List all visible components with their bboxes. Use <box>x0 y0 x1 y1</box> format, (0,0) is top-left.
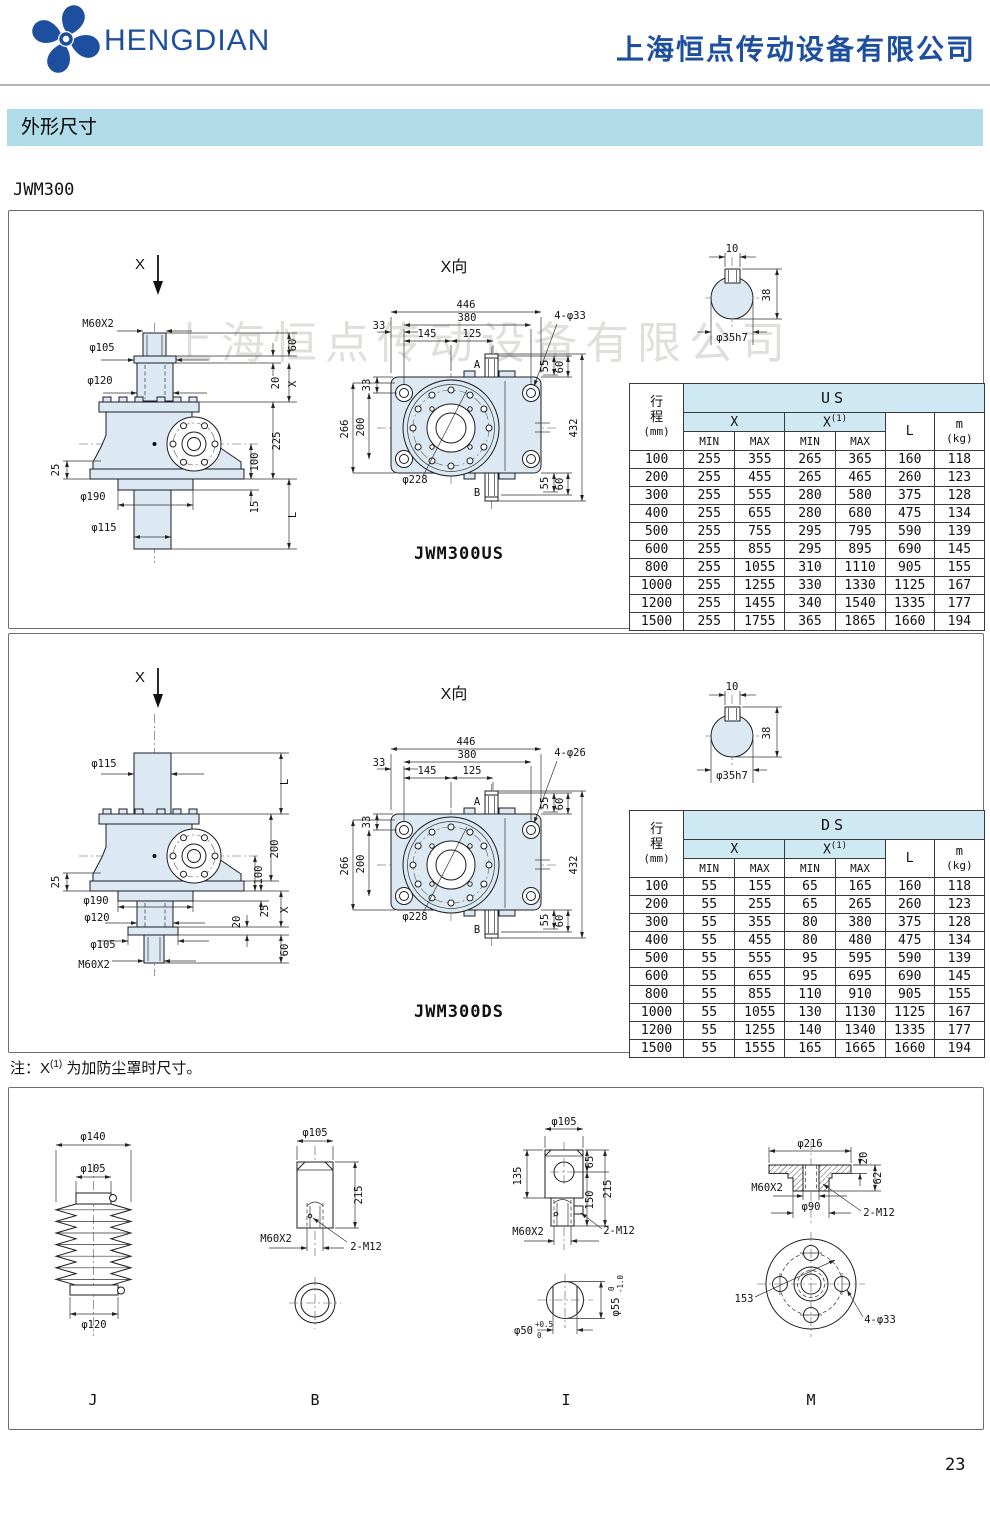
table-cell: 255 <box>684 451 735 469</box>
cap-bottom-view <box>289 1277 341 1329</box>
top-plate-drawing-b: φ105 215 M60X2 2-M12 <box>249 1110 429 1370</box>
table-cell: 265 <box>785 451 835 469</box>
table-cell: 255 <box>684 505 735 523</box>
table-cell: 1335 <box>885 1022 934 1040</box>
table-cell: 139 <box>934 950 984 968</box>
flange-bottom-view <box>757 1232 865 1337</box>
table-cell: 500 <box>630 523 684 541</box>
table-row: 3005535580380375128 <box>630 914 985 932</box>
table-cell: 300 <box>630 914 684 932</box>
table-cell: 1130 <box>835 1004 885 1022</box>
dim-label: 60 <box>279 944 291 957</box>
table-cell: 295 <box>785 541 835 559</box>
dim-label: φ120 <box>87 375 112 387</box>
dim-label: L <box>287 512 299 518</box>
min-header: MIN <box>785 859 835 878</box>
bellows-drawing-j: φ140 φ105 φ120 <box>39 1114 219 1394</box>
dim-label: 33 <box>361 379 373 392</box>
dim-label: φ105 <box>80 1163 105 1175</box>
dim-label: φ115 <box>91 758 116 770</box>
table-cell: 95 <box>785 968 835 986</box>
shaft-section <box>711 707 753 757</box>
table-cell: 600 <box>630 968 684 986</box>
dim-label: 55 <box>539 477 551 490</box>
table-cell: 177 <box>934 1022 984 1040</box>
dim-label: φ105 <box>302 1127 327 1139</box>
dim-label: 15 <box>249 501 261 514</box>
table-cell: 355 <box>735 451 785 469</box>
dim-label: 125 <box>463 328 482 340</box>
table-cell: 80 <box>785 914 835 932</box>
table-cell: 177 <box>934 595 984 613</box>
table-row: 300255555280580375128 <box>630 487 985 505</box>
table-cell: 128 <box>934 487 984 505</box>
table-cell: 1660 <box>885 1040 934 1058</box>
series-header: DS <box>684 811 985 840</box>
dim-label: 145 <box>418 765 437 777</box>
accessory-label-i: I <box>536 1391 596 1409</box>
dim-label: 153 <box>735 1293 754 1305</box>
dim-label: 145 <box>418 328 437 340</box>
dim-label: φ50 <box>514 1325 533 1337</box>
page-number: 23 <box>945 1455 965 1475</box>
dim-label: 432 <box>568 856 580 875</box>
dim-label: φ120 <box>84 912 109 924</box>
table-cell: 895 <box>835 541 885 559</box>
x1-header: X(1) <box>785 840 885 859</box>
table-cell: 140 <box>785 1022 835 1040</box>
table-cell: 165 <box>835 878 885 896</box>
table-row: 400255655280680475134 <box>630 505 985 523</box>
worm-shaft-section-drawing: 10 38 φ35h7 <box>669 241 819 371</box>
table-cell: 910 <box>835 986 885 1004</box>
table-cell: 1755 <box>735 613 785 631</box>
table-cell: 255 <box>735 896 785 914</box>
table-row: 6005565595695690145 <box>630 968 985 986</box>
jwm300ds-front-view-drawing: 446 380 145 125 33 33 266 200 <box>339 736 604 951</box>
table-cell: 555 <box>735 487 785 505</box>
dim-label: 4-φ33 <box>554 310 586 322</box>
table-cell: 690 <box>885 968 934 986</box>
accessory-label-m: M <box>781 1391 841 1409</box>
table-cell: 295 <box>785 523 835 541</box>
dim-label: 60 <box>554 915 566 928</box>
table-cell: 55 <box>684 968 735 986</box>
dim-label: φ105 <box>89 342 114 354</box>
table-cell: 80 <box>785 932 835 950</box>
table-cell: 55 <box>684 986 735 1004</box>
table-row: 4005545580480475134 <box>630 932 985 950</box>
dim-label: 4-φ33 <box>864 1314 896 1326</box>
table-cell: 455 <box>735 932 785 950</box>
dim-label: 10 <box>726 681 739 693</box>
table-cell: 465 <box>835 469 885 487</box>
dim-label: 266 <box>339 420 351 439</box>
table-cell: 280 <box>785 505 835 523</box>
dim-label: φ228 <box>402 911 427 923</box>
table-cell: 500 <box>630 950 684 968</box>
dim-label: 125 <box>463 765 482 777</box>
max-header: MAX <box>835 432 885 451</box>
dim-label: 266 <box>339 857 351 876</box>
dim-label: 20 <box>231 916 243 929</box>
dim-label: 150 <box>584 1191 596 1210</box>
jwm300ds-side-view-drawing: X <box>19 654 319 984</box>
table-cell: 145 <box>934 968 984 986</box>
min-header: MIN <box>684 859 735 878</box>
table-cell: 255 <box>684 487 735 505</box>
dim-label: L <box>279 779 291 785</box>
table-cell: 118 <box>934 878 984 896</box>
stroke-header: 行程(mm) <box>630 384 684 451</box>
table-cell: 365 <box>835 451 885 469</box>
table-cell: 480 <box>835 932 885 950</box>
table-cell: 595 <box>835 950 885 968</box>
x1-header: X(1) <box>785 413 885 432</box>
accessory-label-j: J <box>63 1391 123 1409</box>
dim-tolerance: +0.5 <box>535 1320 553 1329</box>
table-row: 600255855295895690145 <box>630 541 985 559</box>
dim-label: M60X2 <box>751 1182 783 1194</box>
table-row: 200255455265465260123 <box>630 469 985 487</box>
table-row: 1000255125533013301125167 <box>630 577 985 595</box>
table-cell: 590 <box>885 523 934 541</box>
max-header: MAX <box>835 859 885 878</box>
x-header: X <box>684 413 785 432</box>
table-cell: 255 <box>684 541 735 559</box>
flange-plate-drawing-m: φ216 20 62 M60X2 φ90 2-M12 <box>709 1113 939 1348</box>
table-cell: 55 <box>684 1004 735 1022</box>
table-cell: 475 <box>885 932 934 950</box>
table-cell: 905 <box>885 986 934 1004</box>
table-cell: 260 <box>885 896 934 914</box>
view-title: X向 <box>414 253 494 277</box>
table-cell: 95 <box>785 950 835 968</box>
view-direction-arrow: X <box>135 668 163 708</box>
dim-label: φ90 <box>802 1201 821 1213</box>
dim-label: φ35h7 <box>716 770 748 782</box>
table-cell: 167 <box>934 577 984 595</box>
dim-label: φ190 <box>80 491 105 503</box>
table-cell: 55 <box>684 1022 735 1040</box>
dim-label: φ228 <box>402 474 427 486</box>
dim-label: 2-M12 <box>603 1225 635 1237</box>
table-cell: 755 <box>735 523 785 541</box>
table-row: 1200255145534015401335177 <box>630 595 985 613</box>
table-cell: 600 <box>630 541 684 559</box>
jwm300us-front-view-drawing: 446 380 145 125 33 33 266 200 <box>339 299 604 514</box>
table-cell: 555 <box>735 950 785 968</box>
table-cell: 1865 <box>835 613 885 631</box>
dim-label: 25 <box>259 905 271 918</box>
dim-label: B <box>474 924 480 936</box>
dim-label: 2-M12 <box>863 1207 895 1219</box>
table-cell: 55 <box>684 932 735 950</box>
dim-label: 25 <box>50 876 62 889</box>
dim-label: φ140 <box>80 1131 105 1143</box>
table-cell: 55 <box>684 914 735 932</box>
dim-label: 60 <box>554 798 566 811</box>
dim-label: 135 <box>512 1167 524 1186</box>
ds-dimension-table: 行程(mm) DS X X(1) L m(kg) MIN MAX MIN MAX… <box>629 810 985 1058</box>
dim-label: 380 <box>458 749 477 761</box>
table-cell: 255 <box>684 559 735 577</box>
section-title-bar: 外形尺寸 <box>7 109 983 146</box>
drawing-caption: JWM300DS <box>394 1002 524 1022</box>
table-cell: 65 <box>785 896 835 914</box>
table-cell: 340 <box>785 595 835 613</box>
min-header: MIN <box>785 432 835 451</box>
table-cell: 100 <box>630 878 684 896</box>
max-header: MAX <box>735 859 785 878</box>
dim-label: φ105 <box>551 1116 576 1128</box>
table-cell: 310 <box>785 559 835 577</box>
table-cell: 400 <box>630 932 684 950</box>
min-header: MIN <box>684 432 735 451</box>
dim-label: φ35h7 <box>716 332 748 344</box>
table-cell: 65 <box>785 878 835 896</box>
table-cell: 55 <box>684 896 735 914</box>
dim-label: 25 <box>50 464 62 477</box>
dim-label: 4-φ26 <box>554 747 586 759</box>
table-cell: 455 <box>735 469 785 487</box>
table-cell: 123 <box>934 469 984 487</box>
dim-label: A <box>474 796 481 808</box>
dim-label: φ120 <box>81 1319 106 1331</box>
table-cell: 375 <box>885 914 934 932</box>
dim-label: 55 <box>539 797 551 810</box>
table-row: 1500255175536518651660194 <box>630 613 985 631</box>
dim-label: 38 <box>761 289 773 302</box>
table-row: 2005525565265260123 <box>630 896 985 914</box>
table-cell: 165 <box>785 1040 835 1058</box>
table-cell: 118 <box>934 451 984 469</box>
table-cell: 695 <box>835 968 885 986</box>
table-row: 100055105513011301125167 <box>630 1004 985 1022</box>
table-cell: 1540 <box>835 595 885 613</box>
end-fitting-drawings-panel: φ140 φ105 φ120 <box>8 1087 984 1430</box>
table-cell: 1255 <box>735 1022 785 1040</box>
dim-label: 225 <box>271 432 283 451</box>
dim-label: 55 <box>539 914 551 927</box>
dim-label: φ115 <box>91 522 116 534</box>
dim-tolerance: 0 <box>537 1331 542 1340</box>
table-cell: 680 <box>835 505 885 523</box>
table-cell: 1555 <box>735 1040 785 1058</box>
us-dimension-table: 行程(mm) US X X(1) L m(kg) MIN MAX MIN MAX… <box>629 383 985 631</box>
table-cell: 1000 <box>630 577 684 595</box>
table-cell: 855 <box>735 541 785 559</box>
max-header: MAX <box>735 432 785 451</box>
dim-label: 20 <box>858 1152 870 1165</box>
table-cell: 260 <box>885 469 934 487</box>
dim-label: M60X2 <box>78 959 110 971</box>
table-cell: 255 <box>684 595 735 613</box>
dim-label: A <box>474 359 481 371</box>
dim-label: M60X2 <box>260 1233 292 1245</box>
dim-label: 2-M12 <box>350 1241 382 1253</box>
mass-header: m(kg) <box>934 840 984 878</box>
table-row: 5005555595595590139 <box>630 950 985 968</box>
table-cell: 655 <box>735 505 785 523</box>
table-cell: 130 <box>785 1004 835 1022</box>
table-cell: 134 <box>934 932 984 950</box>
dim-label: 33 <box>373 320 386 332</box>
table-cell: 100 <box>630 451 684 469</box>
view-title: X向 <box>414 680 494 704</box>
accessory-label-b: B <box>285 1391 345 1409</box>
table-cell: 1125 <box>885 1004 934 1022</box>
table-cell: 795 <box>835 523 885 541</box>
table-body: 1005515565165160118200552556526526012330… <box>630 878 985 1058</box>
dim-tolerance: -1.0 <box>616 1274 625 1293</box>
table-cell: 1200 <box>630 595 684 613</box>
table-cell: 590 <box>885 950 934 968</box>
jwm300us-side-view-drawing: X <box>19 231 319 576</box>
table-row: 1005515565165160118 <box>630 878 985 896</box>
dim-label: 60 <box>287 339 299 352</box>
table-cell: 55 <box>684 878 735 896</box>
dim-label: 55 <box>539 360 551 373</box>
dim-label: 60 <box>554 361 566 374</box>
dim-label: X <box>135 669 145 686</box>
table-cell: 1500 <box>630 613 684 631</box>
x-header: X <box>684 840 785 859</box>
dim-label: M60X2 <box>512 1226 544 1238</box>
table-cell: 128 <box>934 914 984 932</box>
dim-label: M60X2 <box>82 318 114 330</box>
dim-label: 38 <box>761 727 773 740</box>
dim-label: 432 <box>568 419 580 438</box>
worm-shaft-section-drawing: 10 38 φ35h7 <box>669 679 819 809</box>
table-cell: 200 <box>630 896 684 914</box>
table-cell: 800 <box>630 559 684 577</box>
table-cell: 1330 <box>835 577 885 595</box>
table-cell: 1055 <box>735 1004 785 1022</box>
table-cell: 1125 <box>885 577 934 595</box>
clevis-end-drawing-i: φ105 135 65 150 215 M60X2 2-M12 <box>479 1110 679 1360</box>
table-cell: 375 <box>885 487 934 505</box>
jwm300ds-drawing-panel: X <box>8 633 984 1053</box>
table-cell: 1055 <box>735 559 785 577</box>
table-cell: 167 <box>934 1004 984 1022</box>
table-cell: 1255 <box>735 577 785 595</box>
dim-label: 60 <box>554 478 566 491</box>
table-cell: 155 <box>934 986 984 1004</box>
table-cell: 110 <box>785 986 835 1004</box>
dim-label: 200 <box>269 840 281 859</box>
table-row: 500255755295795590139 <box>630 523 985 541</box>
table-cell: 194 <box>934 613 984 631</box>
section-title: 外形尺寸 <box>21 109 97 146</box>
dim-label: 33 <box>373 757 386 769</box>
dim-label: 380 <box>458 312 477 324</box>
table-cell: 580 <box>835 487 885 505</box>
clevis-body <box>545 1150 583 1226</box>
dim-label: B <box>474 487 480 499</box>
table-cell: 365 <box>785 613 835 631</box>
table-cell: 1110 <box>835 559 885 577</box>
table-cell: 330 <box>785 577 835 595</box>
table-cell: 280 <box>785 487 835 505</box>
series-header: US <box>684 384 985 413</box>
table-cell: 200 <box>630 469 684 487</box>
dim-label: 446 <box>457 736 476 748</box>
table-row: 80055855110910905155 <box>630 986 985 1004</box>
l-header: L <box>885 413 934 451</box>
dim-label: 20 <box>270 377 282 390</box>
dim-label: 33 <box>361 816 373 829</box>
dim-label: 200 <box>355 418 367 437</box>
table-cell: 1200 <box>630 1022 684 1040</box>
shaft-section <box>711 269 753 319</box>
header-divider <box>0 84 990 86</box>
table-cell: 145 <box>934 541 984 559</box>
dim-label: φ190 <box>83 895 108 907</box>
catalog-page: HENGDIAN 上海恒点传动设备有限公司 外形尺寸 JWM300 上海恒点传动… <box>0 0 990 1513</box>
table-cell: 194 <box>934 1040 984 1058</box>
table-cell: 300 <box>630 487 684 505</box>
dim-label: X <box>287 380 299 387</box>
table-body: 1002553552653651601182002554552654652601… <box>630 451 985 631</box>
dim-label: 62 <box>872 1172 884 1185</box>
dim-label: 446 <box>457 299 476 311</box>
hengdian-pinwheel-logo-icon <box>34 6 98 72</box>
dim-label: X <box>135 256 145 273</box>
dim-label: X <box>279 906 291 913</box>
table-cell: 1660 <box>885 613 934 631</box>
table-cell: 655 <box>735 968 785 986</box>
model-label: JWM300 <box>13 180 74 200</box>
company-name: 上海恒点传动设备有限公司 <box>616 28 976 68</box>
table-cell: 265 <box>835 896 885 914</box>
dim-label: 200 <box>355 855 367 874</box>
view-direction-arrow: X <box>135 255 163 295</box>
l-header: L <box>885 840 934 878</box>
table-cell: 380 <box>835 914 885 932</box>
table-cell: 1500 <box>630 1040 684 1058</box>
dim-label: 100 <box>253 866 265 885</box>
jack-body <box>90 753 244 963</box>
table-cell: 255 <box>684 613 735 631</box>
stroke-header: 行程(mm) <box>630 811 684 878</box>
dim-label: 215 <box>602 1180 614 1199</box>
dim-tolerance: 0 <box>607 1286 616 1291</box>
table-cell: 155 <box>934 559 984 577</box>
table-cell: 1455 <box>735 595 785 613</box>
table-cell: 1665 <box>835 1040 885 1058</box>
mass-header: m(kg) <box>934 413 984 451</box>
table-row: 120055125514013401335177 <box>630 1022 985 1040</box>
dim-label: φ216 <box>797 1138 822 1150</box>
table-cell: 800 <box>630 986 684 1004</box>
table-cell: 355 <box>735 914 785 932</box>
table-cell: 1340 <box>835 1022 885 1040</box>
table-cell: 123 <box>934 896 984 914</box>
table-cell: 139 <box>934 523 984 541</box>
dim-label: 65 <box>584 1156 596 1169</box>
table-cell: 1335 <box>885 595 934 613</box>
table-row: 100255355265365160118 <box>630 451 985 469</box>
table-row: 80025510553101110905155 <box>630 559 985 577</box>
table-cell: 265 <box>785 469 835 487</box>
table-cell: 905 <box>885 559 934 577</box>
table-row: 150055155516516651660194 <box>630 1040 985 1058</box>
table-cell: 160 <box>885 878 934 896</box>
dim-label: 215 <box>353 1186 365 1205</box>
brand-name: HENGDIAN <box>104 24 270 58</box>
table-cell: 160 <box>885 451 934 469</box>
